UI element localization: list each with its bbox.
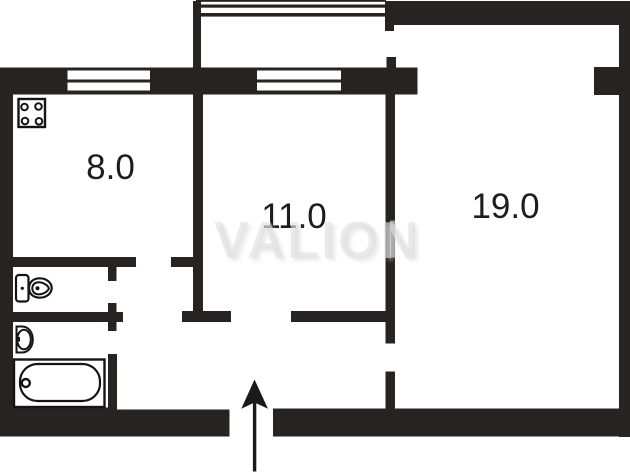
svg-text:VALION: VALION <box>214 212 420 270</box>
svg-text:19.0: 19.0 <box>471 187 539 226</box>
svg-text:8.0: 8.0 <box>86 148 135 187</box>
